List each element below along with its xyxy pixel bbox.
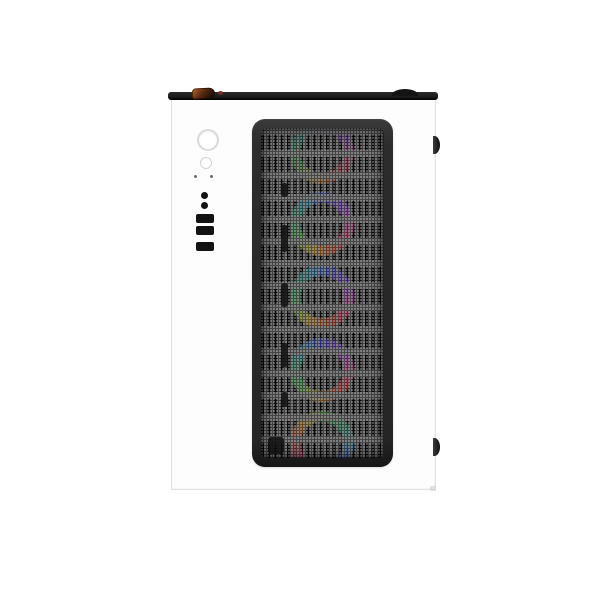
usb-port-3 bbox=[196, 242, 214, 251]
side-thumbscrew-top bbox=[433, 136, 440, 154]
mesh-vignette bbox=[261, 128, 384, 458]
reset-button bbox=[200, 157, 212, 169]
led-indicator-left bbox=[194, 175, 197, 178]
product-photo bbox=[0, 0, 600, 600]
led-indicator-right bbox=[210, 175, 213, 178]
side-thumbscrew-bottom bbox=[433, 438, 440, 456]
mesh-panel bbox=[261, 128, 384, 458]
case-top-trim bbox=[168, 92, 438, 100]
usb-port-1 bbox=[196, 214, 214, 223]
bottom-corner-foot bbox=[430, 486, 436, 491]
top-latch-clip bbox=[192, 87, 216, 99]
mesh-panel-frame bbox=[252, 119, 393, 467]
audio-jack bbox=[201, 192, 208, 199]
power-button bbox=[197, 129, 219, 151]
mic-jack bbox=[201, 202, 208, 209]
top-latch-button bbox=[392, 89, 418, 96]
usb-port-2 bbox=[196, 226, 214, 235]
top-latch-pin bbox=[218, 91, 223, 95]
